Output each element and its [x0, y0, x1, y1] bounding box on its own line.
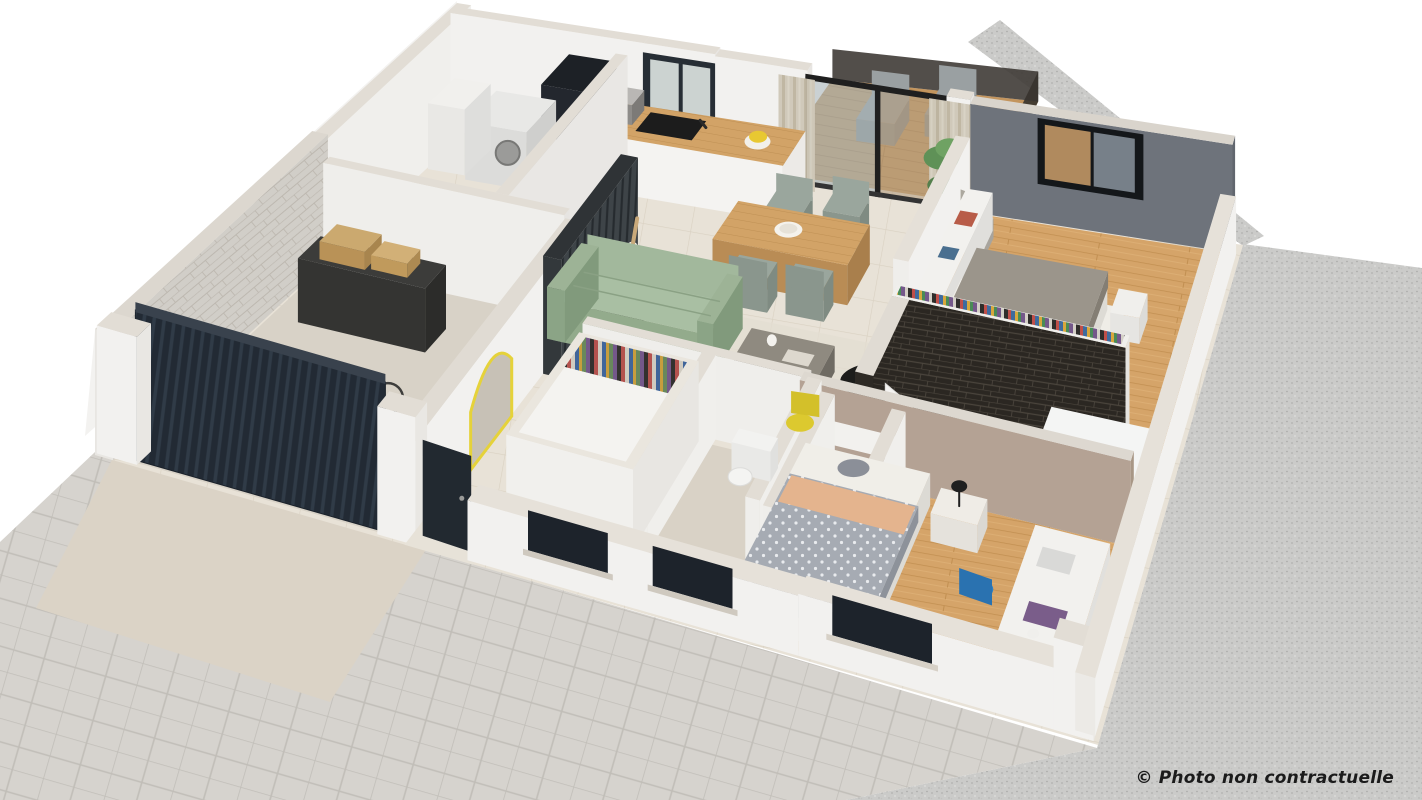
sofa-arm-left [547, 287, 565, 343]
bedroom2-pillow [838, 459, 870, 477]
front-door-handle [459, 496, 464, 501]
horse-figurine [767, 334, 777, 346]
watermark: © Photo non contractuelle [1135, 768, 1394, 788]
floorplan-render [0, 0, 1422, 800]
master-window-pane-left [1045, 125, 1091, 186]
sliding-door-frame-mid [875, 87, 881, 198]
yellow-flowers [749, 131, 767, 143]
nightstand-lamp-shade [951, 480, 967, 492]
water-heater [428, 103, 465, 175]
yellow-chair [786, 414, 814, 432]
desk-lamp-white [1027, 629, 1039, 639]
washing-machine-door [496, 141, 520, 165]
screenshot-3d-floorplan: © Photo non contractuelle [0, 0, 1422, 800]
sliding-door-glass-left [808, 78, 878, 195]
sw-pier-west [137, 323, 151, 465]
se-wall [1075, 672, 1095, 736]
table-centerpiece-inner [779, 224, 797, 234]
front-door [423, 440, 472, 552]
kitchen-window-mullion [679, 63, 683, 116]
master-window-pane-right [1094, 132, 1135, 192]
sw-pier-entry [377, 406, 415, 545]
sw-pier-west [97, 325, 137, 465]
yellow-chair-back [791, 391, 819, 417]
toilet-bowl [728, 468, 752, 486]
